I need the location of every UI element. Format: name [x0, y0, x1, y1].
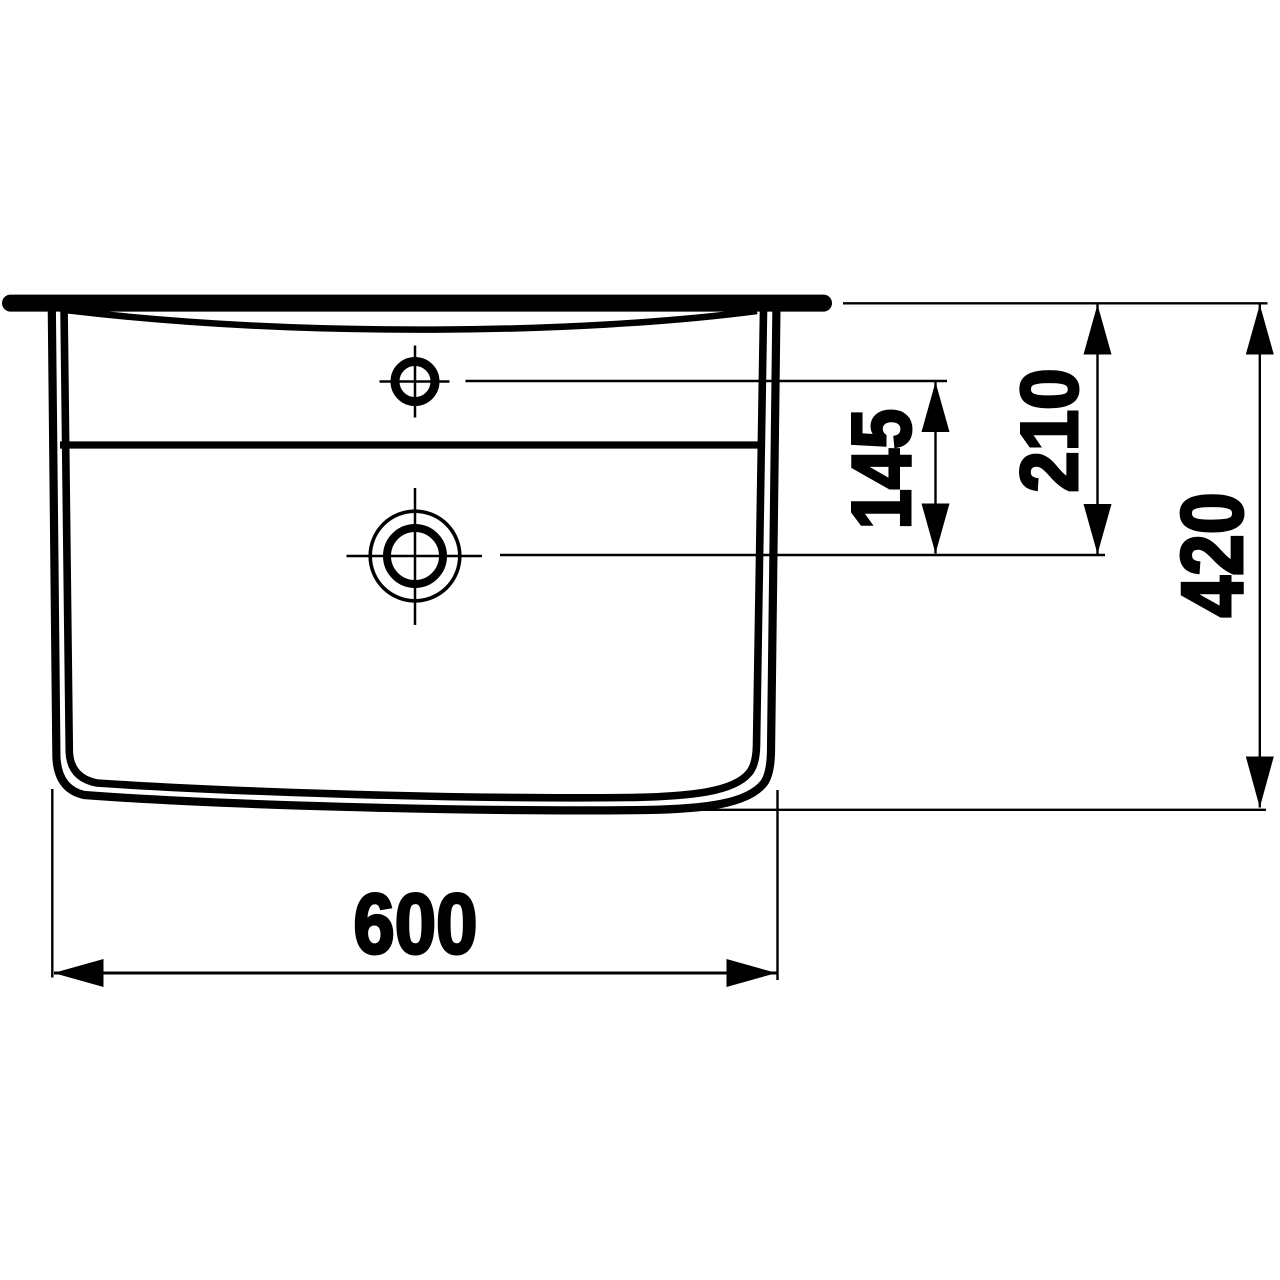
svg-text:600: 600 [353, 876, 477, 972]
svg-text:145: 145 [834, 409, 928, 530]
svg-text:420: 420 [1165, 493, 1261, 618]
svg-text:210: 210 [1005, 368, 1095, 492]
